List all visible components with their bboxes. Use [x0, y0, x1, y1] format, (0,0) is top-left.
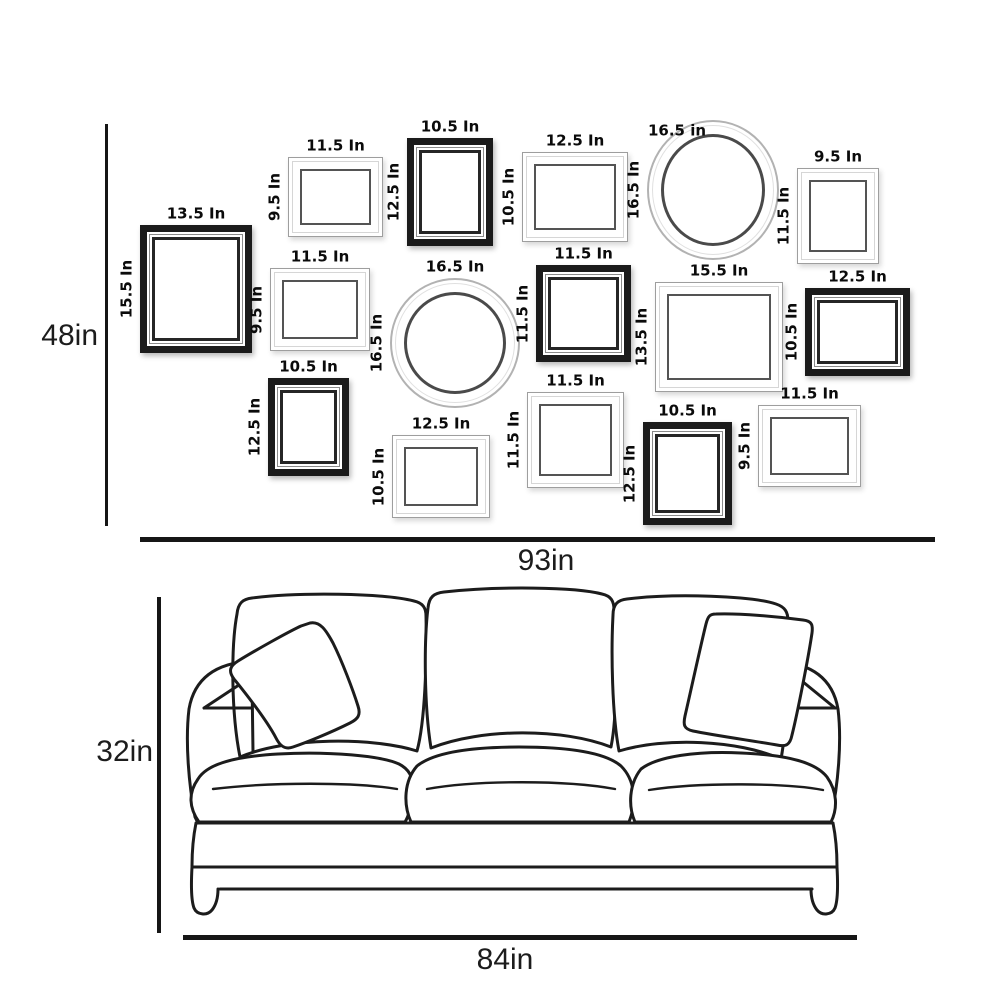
sofa-illustration	[0, 0, 1000, 1000]
sofa-pillow-right	[684, 614, 812, 746]
sofa-seat-cushion-middle	[406, 747, 634, 822]
sofa-base	[192, 823, 837, 867]
sofa-back-cushion-middle	[425, 588, 616, 748]
sofa-leg-right	[811, 867, 838, 914]
dimension-diagram: 48in 93in 13.5 In15.5 In11.5 In9.5 In10.…	[0, 0, 1000, 1000]
sofa-leg-left	[191, 867, 218, 914]
